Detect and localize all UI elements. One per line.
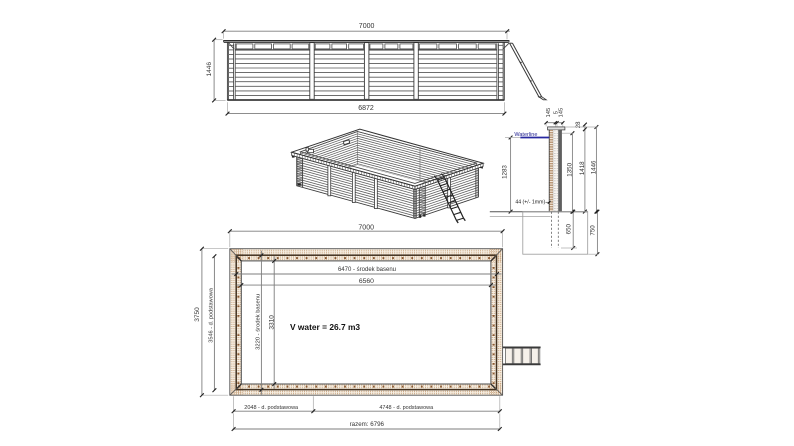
svg-text:6872: 6872 bbox=[358, 105, 374, 112]
svg-text:6470 - środek basenu: 6470 - środek basenu bbox=[338, 267, 396, 273]
svg-text:4748 - d. podstawowa: 4748 - d. podstawowa bbox=[379, 405, 434, 411]
svg-text:650: 650 bbox=[566, 223, 573, 234]
svg-text:V water = 26.7 m3: V water = 26.7 m3 bbox=[290, 322, 360, 332]
svg-text:145: 145 bbox=[558, 108, 564, 118]
svg-text:44 (+/- 1mm): 44 (+/- 1mm) bbox=[515, 200, 545, 206]
svg-text:1446: 1446 bbox=[206, 62, 213, 77]
svg-text:1350: 1350 bbox=[567, 162, 574, 176]
svg-text:7000: 7000 bbox=[359, 23, 375, 30]
svg-text:3220 - środek basenu: 3220 - środek basenu bbox=[255, 294, 261, 350]
svg-text:1418: 1418 bbox=[579, 161, 586, 175]
svg-text:3310: 3310 bbox=[269, 315, 276, 330]
svg-text:1446: 1446 bbox=[590, 160, 597, 174]
svg-text:razem: 6796: razem: 6796 bbox=[350, 421, 385, 428]
svg-text:1283: 1283 bbox=[502, 165, 509, 179]
svg-text:3546 - d. podstawowa: 3546 - d. podstawowa bbox=[208, 287, 214, 343]
svg-text:3750: 3750 bbox=[194, 307, 201, 322]
svg-text:6560: 6560 bbox=[359, 278, 374, 285]
svg-text:7000: 7000 bbox=[358, 224, 374, 231]
svg-text:750: 750 bbox=[590, 225, 597, 236]
svg-text:145: 145 bbox=[546, 108, 552, 118]
svg-text:2048 - d. podstawowa: 2048 - d. podstawowa bbox=[244, 405, 299, 411]
